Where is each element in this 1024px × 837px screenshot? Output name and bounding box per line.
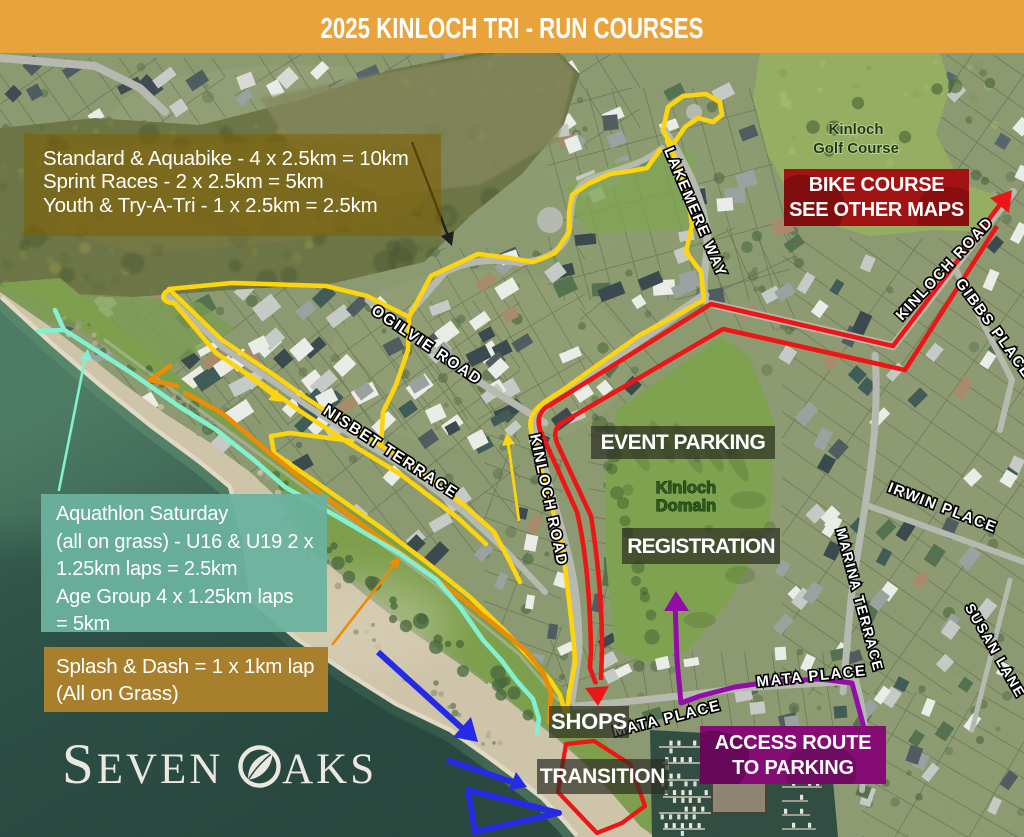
svg-text:Kinloch: Kinloch <box>829 121 884 138</box>
svg-text:Golf Course: Golf Course <box>813 140 899 157</box>
svg-text:Kinloch: Kinloch <box>656 479 717 497</box>
svg-text:Domain: Domain <box>656 497 717 515</box>
